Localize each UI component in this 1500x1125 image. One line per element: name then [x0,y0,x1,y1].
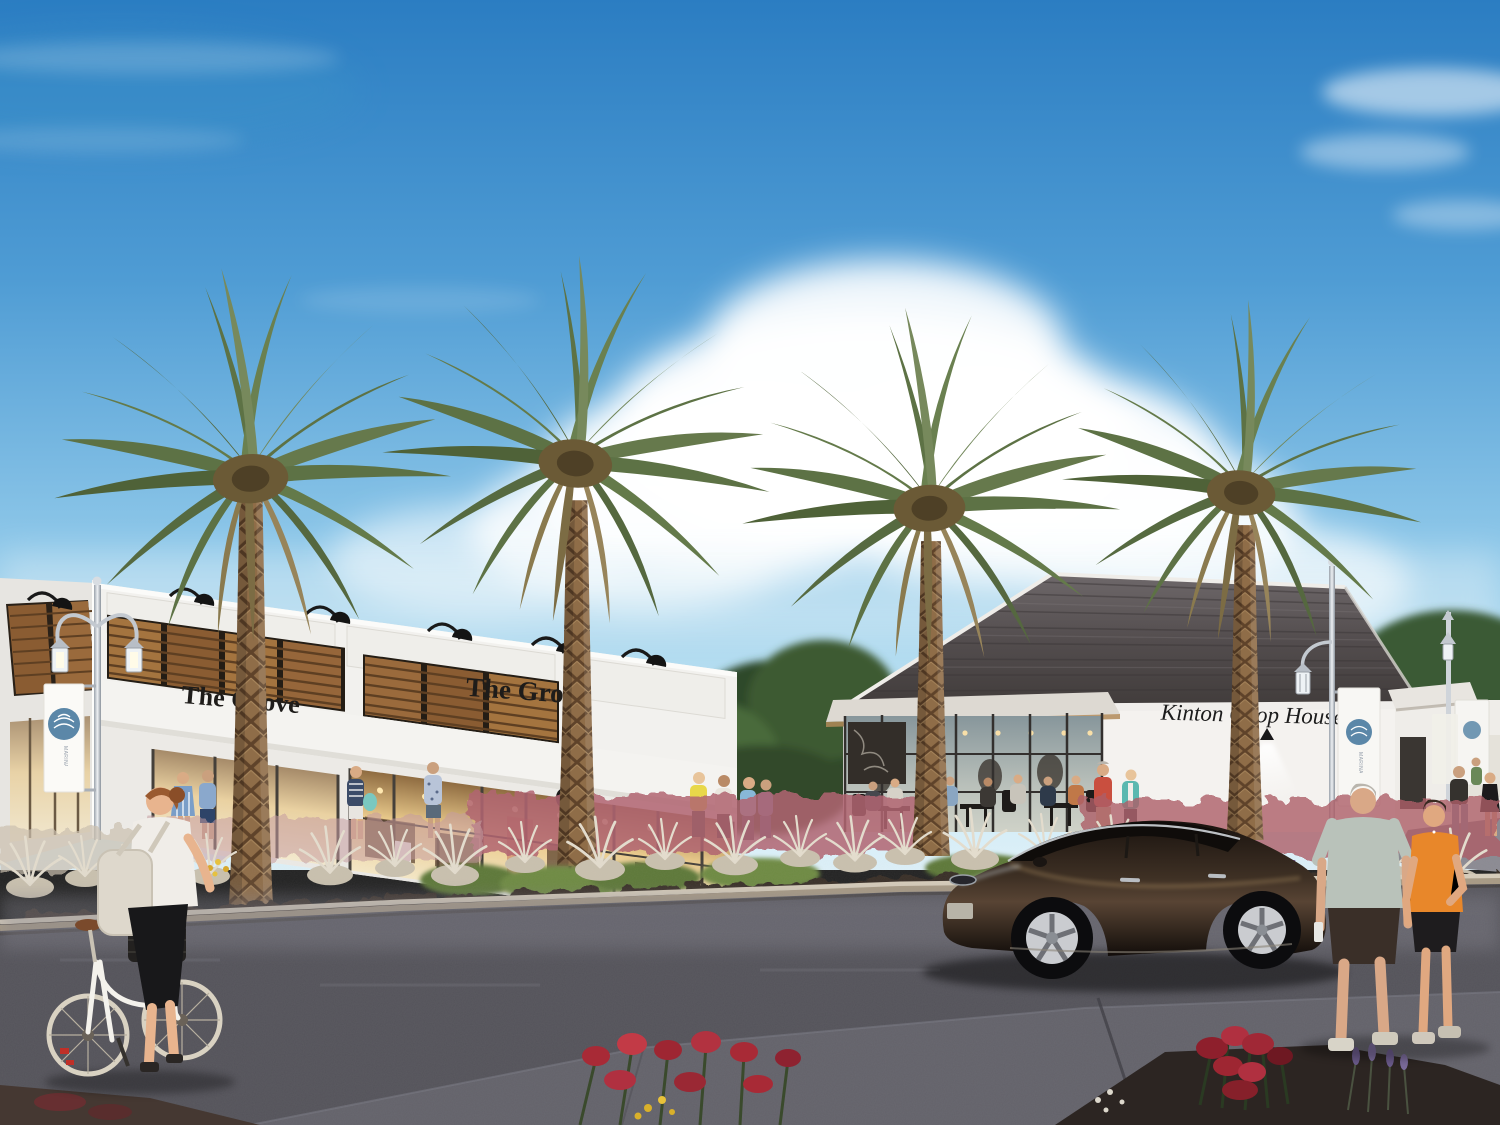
car-mirror [1033,857,1047,867]
cyclist-shoe [140,1062,159,1072]
woman-sneaker [1438,1026,1461,1038]
scene-canvas: The Grove The Grove Kinton Chop House [0,0,1500,1125]
woman-shorts [1411,912,1460,952]
pink-muhly-grass [470,795,930,853]
architectural-rendering: The Grove The Grove Kinton Chop House [0,0,1500,1125]
bike-reflector [60,1048,69,1054]
car-door-handle [1120,878,1140,883]
man-shorts [1328,908,1400,964]
man-sneaker [1328,1038,1354,1051]
car-door-handle [1208,874,1226,879]
car-front-wheel [1011,897,1093,979]
cyclist-shoe [166,1054,183,1063]
man-bottle [1314,922,1323,942]
man-sneaker [1372,1032,1398,1045]
annex-doorway [1400,737,1426,809]
woman-sneaker [1412,1032,1435,1044]
car-rear-wheel [1223,891,1301,969]
banner-marina-landings-right: MARINA LANDINGS [1335,688,1380,806]
car-headlight [950,875,976,885]
car-license-plate [947,903,973,919]
